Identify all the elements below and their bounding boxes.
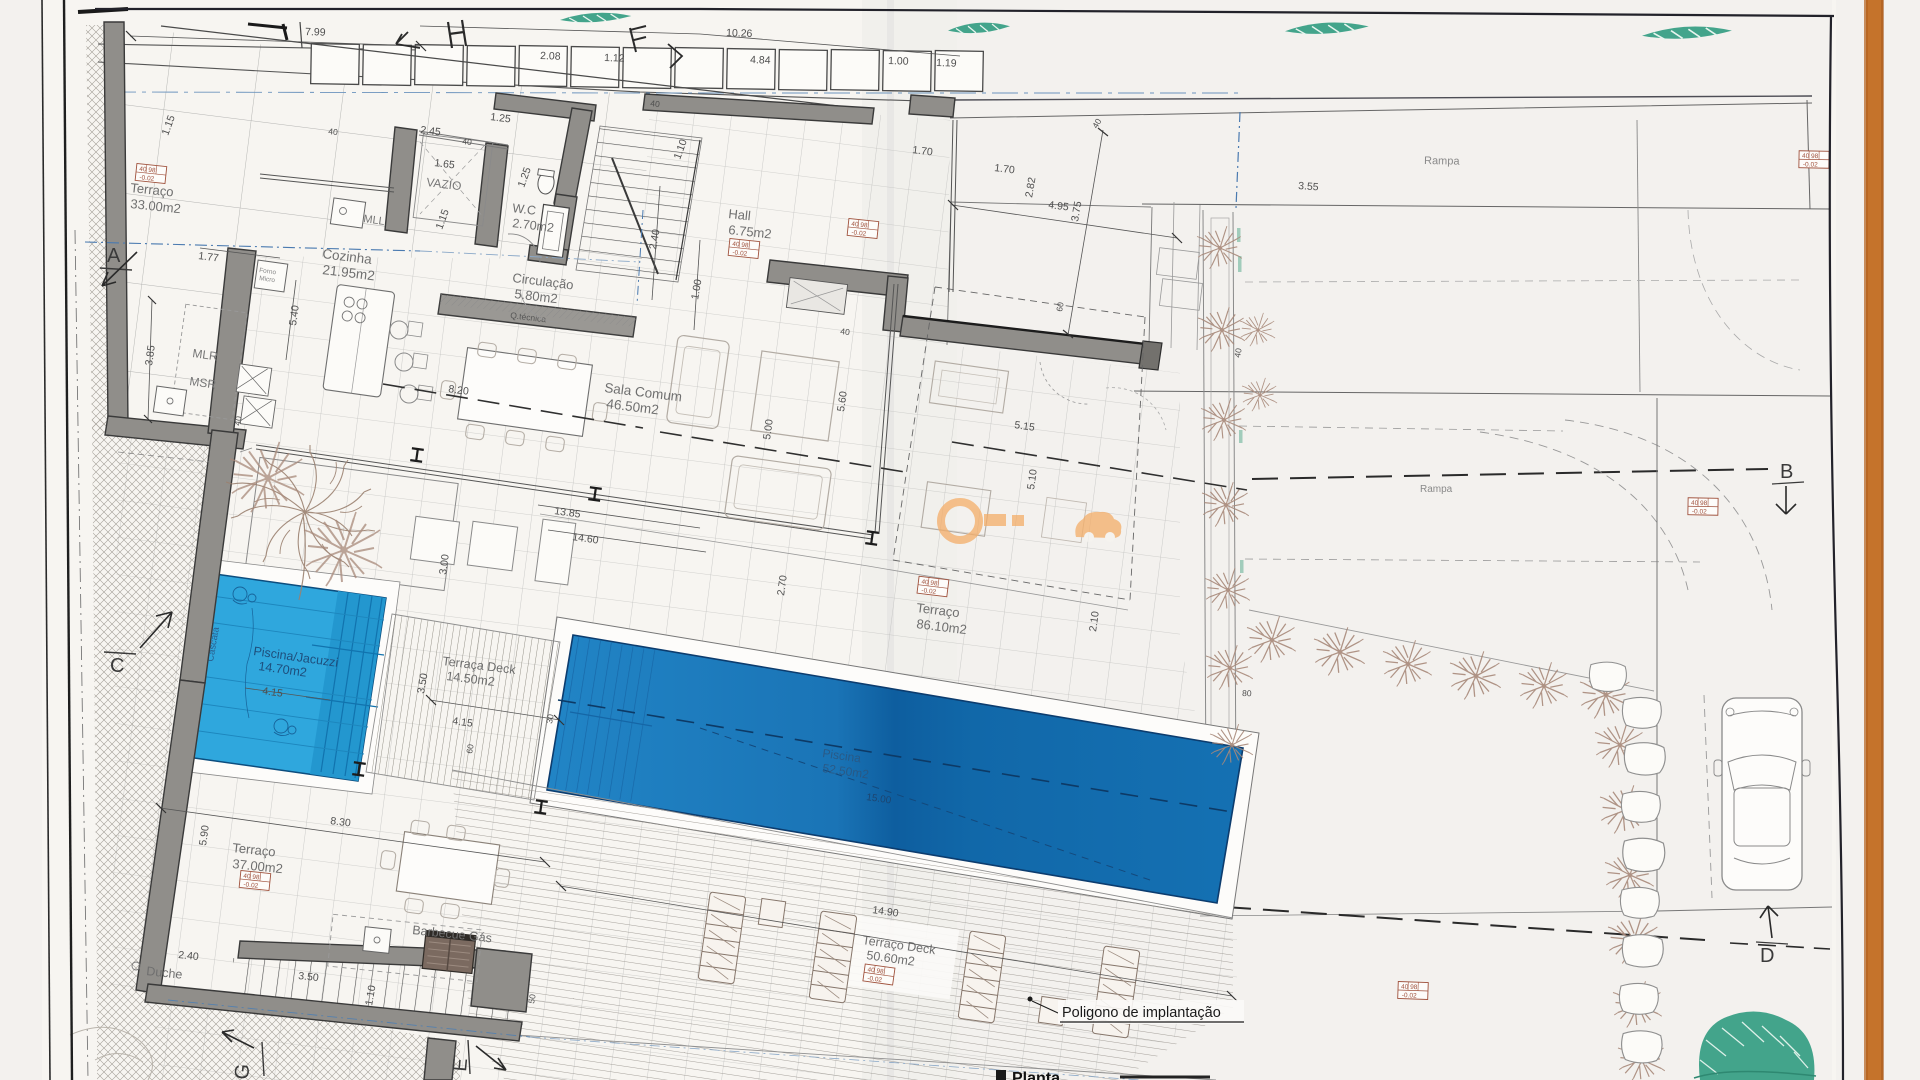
svg-text:B: B — [1780, 461, 1793, 483]
svg-text:40: 40 — [232, 415, 244, 426]
svg-text:1.19: 1.19 — [936, 57, 957, 70]
svg-text:60: 60 — [464, 743, 476, 754]
svg-text:80: 80 — [1242, 688, 1252, 698]
svg-text:Rampa: Rampa — [1420, 484, 1453, 495]
svg-text:W.C: W.C — [512, 201, 537, 218]
svg-text:1.65: 1.65 — [434, 157, 456, 171]
svg-text:50: 50 — [526, 993, 538, 1004]
svg-text:10.26: 10.26 — [726, 27, 753, 40]
svg-text:30: 30 — [544, 713, 556, 724]
svg-text:3.55: 3.55 — [1298, 180, 1319, 193]
svg-text:40: 40 — [328, 126, 339, 137]
svg-text:C: C — [110, 655, 124, 677]
svg-text:40: 40 — [840, 326, 851, 337]
svg-text:1.77: 1.77 — [198, 250, 220, 264]
svg-text:40: 40 — [650, 98, 661, 109]
svg-text:Poligono de implantação: Poligono de implantação — [1062, 1005, 1221, 1021]
svg-text:40: 40 — [462, 136, 473, 147]
svg-text:Rampa: Rampa — [1424, 155, 1461, 168]
svg-text:7.99: 7.99 — [305, 26, 326, 39]
svg-text:4.84: 4.84 — [750, 54, 771, 67]
svg-text:60: 60 — [1054, 301, 1066, 312]
svg-text:G: G — [231, 1063, 254, 1080]
svg-text:40: 40 — [1232, 347, 1244, 358]
svg-text:D: D — [1760, 945, 1774, 967]
svg-text:2.40: 2.40 — [178, 949, 200, 963]
svg-text:1.25: 1.25 — [490, 111, 512, 125]
svg-text:3.50: 3.50 — [298, 970, 320, 984]
svg-text:1.00: 1.00 — [888, 55, 909, 68]
svg-text:2.08: 2.08 — [540, 50, 561, 63]
svg-text:4.95: 4.95 — [1048, 199, 1070, 213]
svg-text:1.12: 1.12 — [604, 52, 625, 65]
svg-text:Hall: Hall — [728, 206, 752, 223]
svg-text:2.45: 2.45 — [420, 124, 442, 138]
svg-text:Planta: Planta — [1012, 1070, 1060, 1080]
svg-text:1.70: 1.70 — [994, 162, 1016, 176]
svg-text:A: A — [107, 245, 121, 267]
svg-text:1.70: 1.70 — [912, 144, 934, 158]
svg-text:8.30: 8.30 — [330, 815, 352, 829]
